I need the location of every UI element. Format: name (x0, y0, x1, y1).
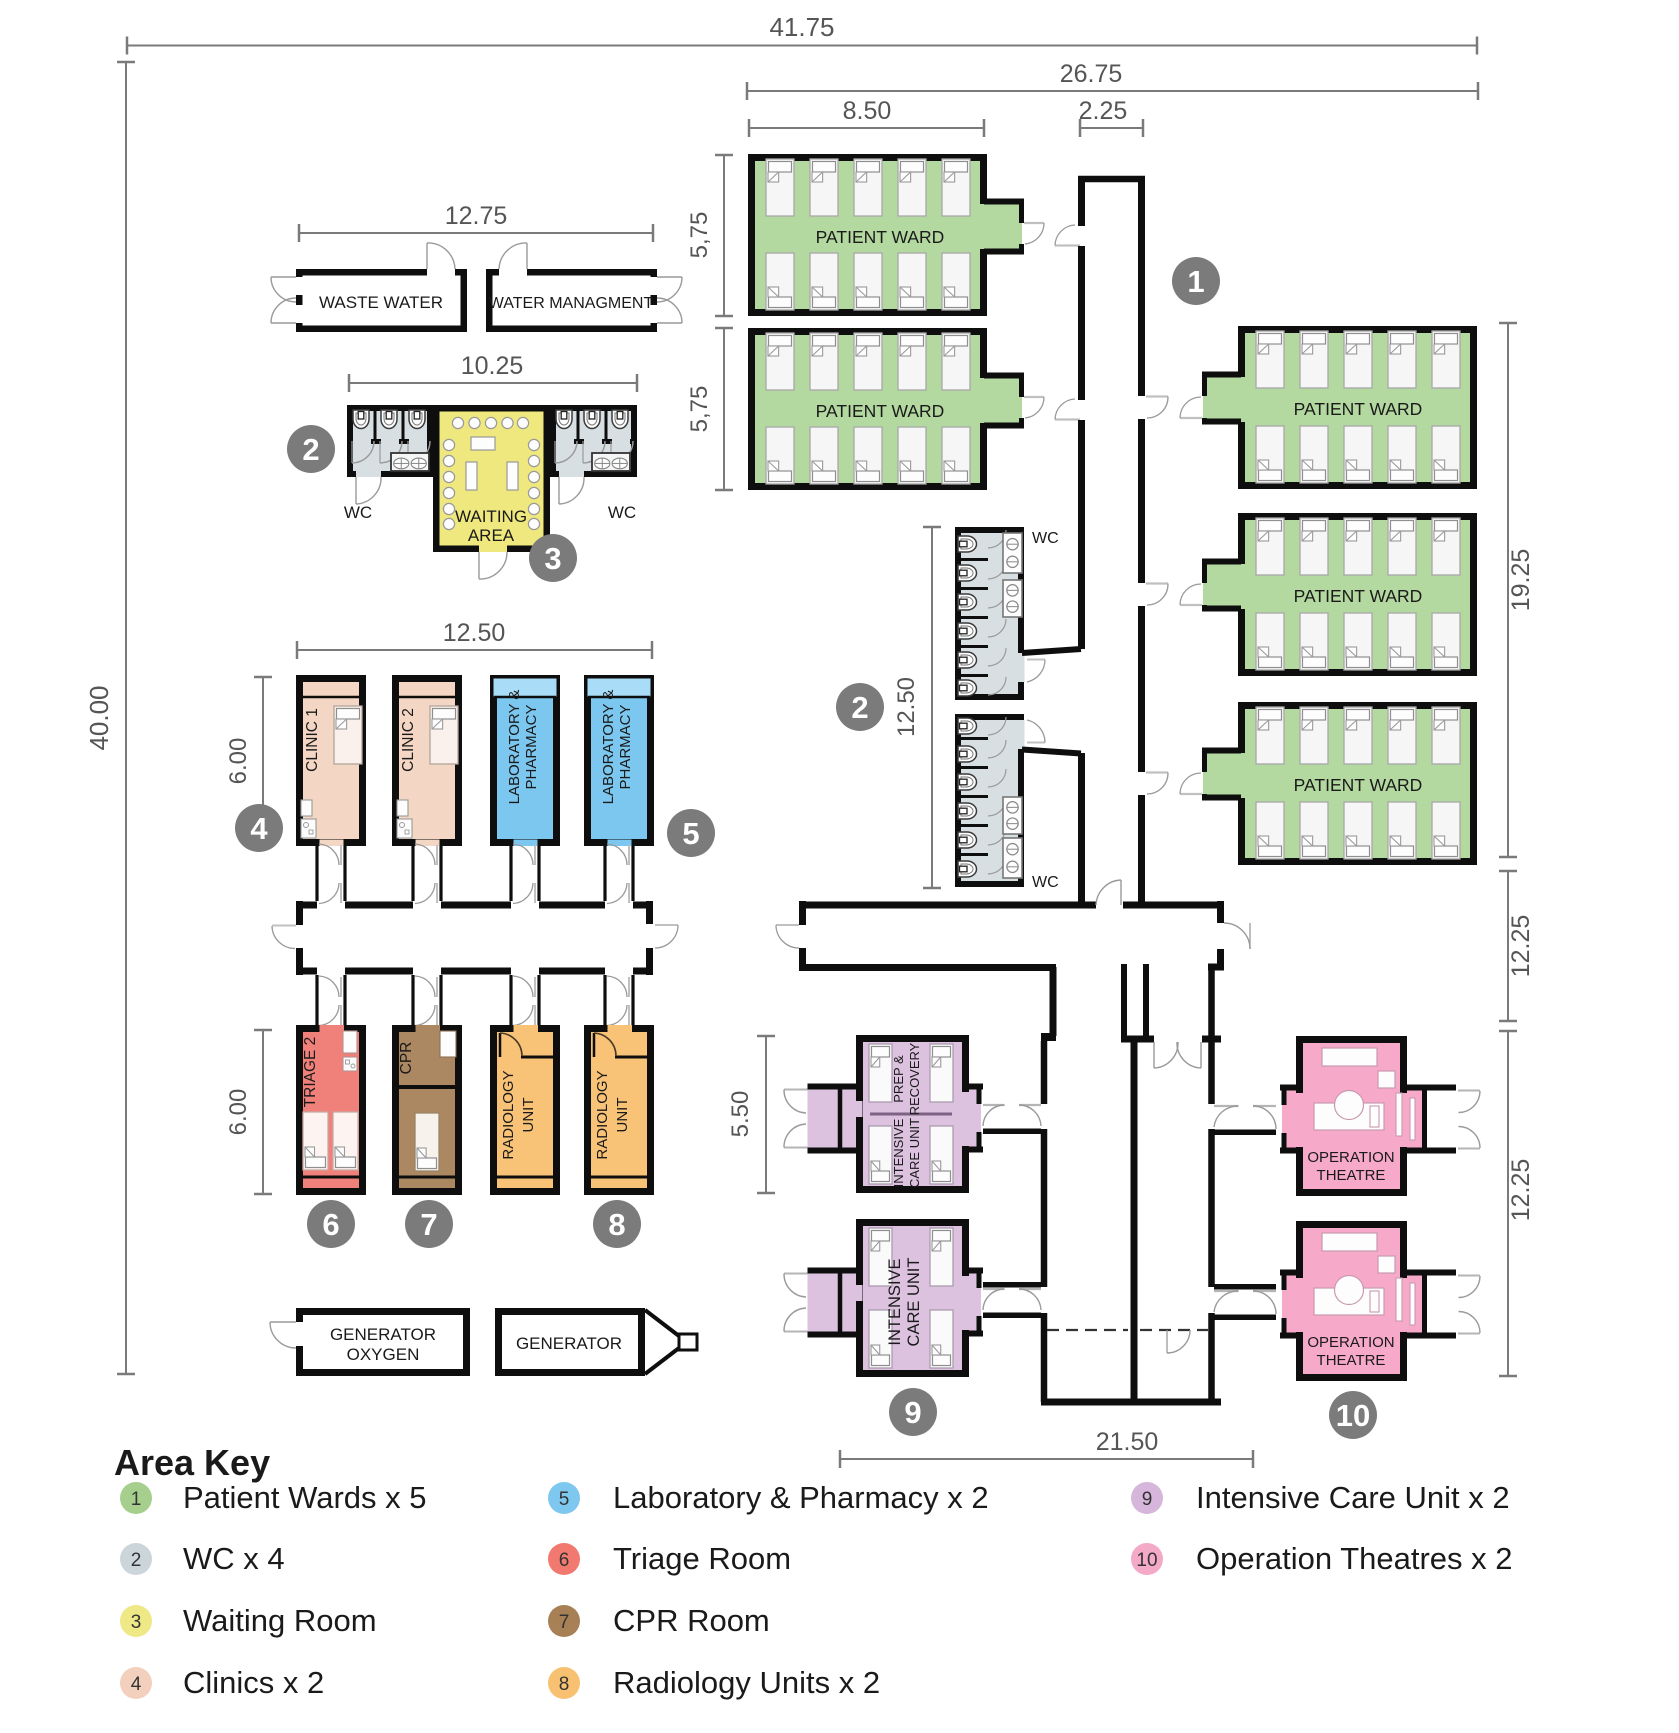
svg-text:WC: WC (608, 503, 636, 522)
svg-text:WATER MANAGMENT: WATER MANAGMENT (489, 295, 654, 312)
svg-text:Laboratory & Pharmacy x 2: Laboratory & Pharmacy x 2 (613, 1480, 989, 1515)
svg-text:4: 4 (131, 1674, 142, 1695)
svg-text:10: 10 (1336, 1398, 1370, 1433)
svg-text:8: 8 (559, 1674, 570, 1695)
svg-text:OXYGEN: OXYGEN (347, 1345, 420, 1364)
svg-text:PHARMACY: PHARMACY (523, 704, 540, 789)
svg-text:6: 6 (559, 1550, 570, 1571)
svg-text:OPERATION: OPERATION (1307, 1149, 1394, 1166)
svg-text:Operation Theatres x 2: Operation Theatres x 2 (1196, 1541, 1513, 1576)
svg-text:PHARMACY: PHARMACY (617, 704, 634, 789)
svg-text:Patient Wards x 5: Patient Wards x 5 (183, 1480, 427, 1515)
svg-text:7: 7 (420, 1207, 437, 1242)
svg-text:PATIENT WARD: PATIENT WARD (816, 401, 945, 421)
svg-text:6: 6 (322, 1207, 339, 1242)
svg-text:10.25: 10.25 (461, 352, 524, 380)
svg-text:AREA: AREA (468, 526, 515, 545)
svg-text:3: 3 (131, 1612, 142, 1633)
svg-text:PATIENT WARD: PATIENT WARD (1294, 586, 1423, 606)
svg-text:Triage Room: Triage Room (613, 1541, 791, 1576)
svg-text:INTENSIVE: INTENSIVE (886, 1258, 904, 1345)
svg-text:UNIT: UNIT (520, 1098, 537, 1133)
svg-text:PATIENT WARD: PATIENT WARD (1294, 775, 1423, 795)
svg-text:2: 2 (302, 432, 319, 467)
svg-text:WAITING: WAITING (455, 507, 527, 526)
svg-text:26.75: 26.75 (1060, 60, 1123, 88)
svg-text:OPERATION: OPERATION (1307, 1334, 1394, 1351)
svg-text:5,75: 5,75 (686, 212, 713, 259)
svg-text:8: 8 (608, 1207, 625, 1242)
svg-text:12.25: 12.25 (1507, 915, 1535, 978)
svg-text:CARE UNIT: CARE UNIT (907, 1118, 922, 1188)
svg-text:1: 1 (1187, 264, 1204, 299)
svg-text:Area Key: Area Key (114, 1442, 270, 1483)
svg-text:12.75: 12.75 (445, 202, 508, 230)
svg-text:PATIENT WARD: PATIENT WARD (1294, 399, 1423, 419)
svg-text:2.25: 2.25 (1079, 97, 1128, 125)
svg-text:CPR: CPR (398, 1042, 415, 1075)
svg-text:GENERATOR: GENERATOR (516, 1334, 622, 1353)
svg-text:3: 3 (544, 541, 561, 576)
svg-text:9: 9 (1142, 1489, 1153, 1510)
svg-text:19.25: 19.25 (1507, 549, 1535, 612)
svg-text:Radiology Units x 2: Radiology Units x 2 (613, 1665, 880, 1700)
svg-text:12.50: 12.50 (893, 677, 920, 737)
svg-text:4: 4 (250, 811, 268, 846)
svg-text:6.00: 6.00 (225, 738, 252, 785)
svg-text:RECOVERY: RECOVERY (907, 1042, 922, 1115)
svg-text:WC: WC (1032, 530, 1059, 547)
svg-text:LABORATORY &: LABORATORY & (506, 690, 523, 805)
svg-text:RADIOLOGY: RADIOLOGY (594, 1070, 611, 1159)
svg-text:8.50: 8.50 (843, 97, 892, 125)
svg-text:Clinics x 2: Clinics x 2 (183, 1665, 324, 1700)
svg-text:INTENSIVE: INTENSIVE (891, 1118, 906, 1187)
svg-text:7: 7 (559, 1612, 570, 1633)
svg-text:WASTE WATER: WASTE WATER (319, 293, 443, 312)
svg-text:12.50: 12.50 (443, 619, 506, 647)
svg-text:6.00: 6.00 (225, 1089, 252, 1136)
svg-text:Waiting Room: Waiting Room (183, 1603, 377, 1638)
svg-text:TRIAGE 2: TRIAGE 2 (302, 1037, 319, 1108)
svg-text:12.25: 12.25 (1507, 1159, 1535, 1222)
svg-text:WC x 4: WC x 4 (183, 1541, 285, 1576)
svg-text:CLINIC 1: CLINIC 1 (304, 708, 321, 772)
svg-text:2: 2 (851, 690, 868, 725)
svg-text:PREP &: PREP & (891, 1055, 906, 1103)
svg-text:40.00: 40.00 (84, 685, 114, 750)
svg-text:10: 10 (1136, 1550, 1157, 1571)
svg-text:THEATRE: THEATRE (1317, 1167, 1386, 1184)
svg-text:PATIENT WARD: PATIENT WARD (816, 227, 945, 247)
svg-text:9: 9 (904, 1395, 921, 1430)
svg-text:Intensive Care Unit x 2: Intensive Care Unit x 2 (1196, 1480, 1510, 1515)
svg-text:CLINIC 2: CLINIC 2 (400, 708, 417, 772)
svg-text:UNIT: UNIT (614, 1098, 631, 1133)
svg-text:5: 5 (682, 816, 699, 851)
svg-text:41.75: 41.75 (769, 12, 834, 42)
svg-text:LABORATORY &: LABORATORY & (600, 690, 617, 805)
svg-text:CPR Room: CPR Room (613, 1603, 770, 1638)
svg-text:WC: WC (1032, 874, 1059, 891)
svg-text:5: 5 (559, 1489, 570, 1510)
svg-text:5,75: 5,75 (686, 386, 713, 433)
svg-text:WC: WC (344, 503, 372, 522)
svg-text:GENERATOR: GENERATOR (330, 1325, 436, 1344)
svg-text:CARE UNIT: CARE UNIT (905, 1258, 923, 1347)
svg-text:21.50: 21.50 (1096, 1428, 1159, 1456)
svg-text:THEATRE: THEATRE (1317, 1352, 1386, 1369)
svg-text:5.50: 5.50 (727, 1091, 754, 1138)
svg-text:1: 1 (131, 1489, 142, 1510)
svg-text:2: 2 (131, 1550, 142, 1571)
svg-text:RADIOLOGY: RADIOLOGY (500, 1070, 517, 1159)
